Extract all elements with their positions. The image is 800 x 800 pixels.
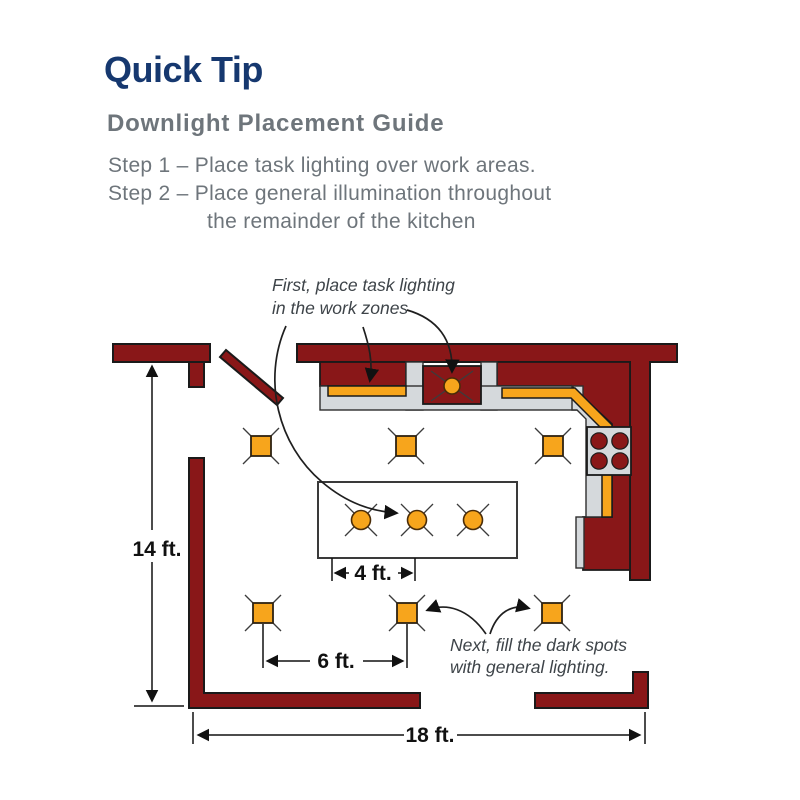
- dimension-4ft: 4 ft.: [332, 558, 415, 585]
- general-note-line2: with general lighting.: [450, 657, 610, 677]
- dimension-6ft: 6 ft.: [263, 624, 407, 673]
- task-strip-left: [328, 386, 406, 396]
- kitchen-floor-plan: 14 ft. 4 ft. 6 ft. 18 ft. First, place t…: [0, 0, 800, 800]
- square-downlight-icon: [388, 428, 424, 464]
- dim-island-label: 4 ft.: [354, 562, 391, 585]
- dimension-18ft: 18 ft.: [193, 712, 645, 747]
- top-left-wall: [113, 344, 210, 362]
- door-return-stub: [189, 362, 204, 387]
- arrow-to-middle-downlight: [428, 607, 486, 634]
- bottom-right-wall: [535, 672, 648, 708]
- burner: [591, 433, 607, 449]
- task-note-line2: in the work zones: [272, 298, 408, 318]
- burner: [612, 433, 628, 449]
- door-leaf: [220, 350, 283, 405]
- burner: [591, 453, 607, 469]
- sink-area: [423, 366, 481, 404]
- dim-height-label: 14 ft.: [132, 538, 181, 561]
- task-note-line1: First, place task lighting: [272, 275, 455, 295]
- burner: [612, 453, 628, 469]
- counter-sliver: [576, 517, 584, 568]
- annotation-general-lighting: Next, fill the dark spots with general l…: [428, 607, 627, 677]
- square-downlight-icon: [535, 428, 571, 464]
- dim-width-label: 18 ft.: [405, 724, 454, 747]
- dimension-14ft: 14 ft.: [132, 367, 184, 706]
- arrow-to-right-downlight: [490, 607, 528, 634]
- square-downlight-icon: [534, 595, 570, 631]
- square-downlight-icon: [243, 428, 279, 464]
- sink-task-downlight: [444, 378, 460, 394]
- quick-tip-page: Quick Tip Downlight Placement Guide Step…: [0, 0, 800, 800]
- dim-spacing-label: 6 ft.: [317, 650, 354, 673]
- upper-cabinet-left: [320, 362, 406, 386]
- stove: [587, 427, 631, 475]
- general-note-line1: Next, fill the dark spots: [450, 635, 627, 655]
